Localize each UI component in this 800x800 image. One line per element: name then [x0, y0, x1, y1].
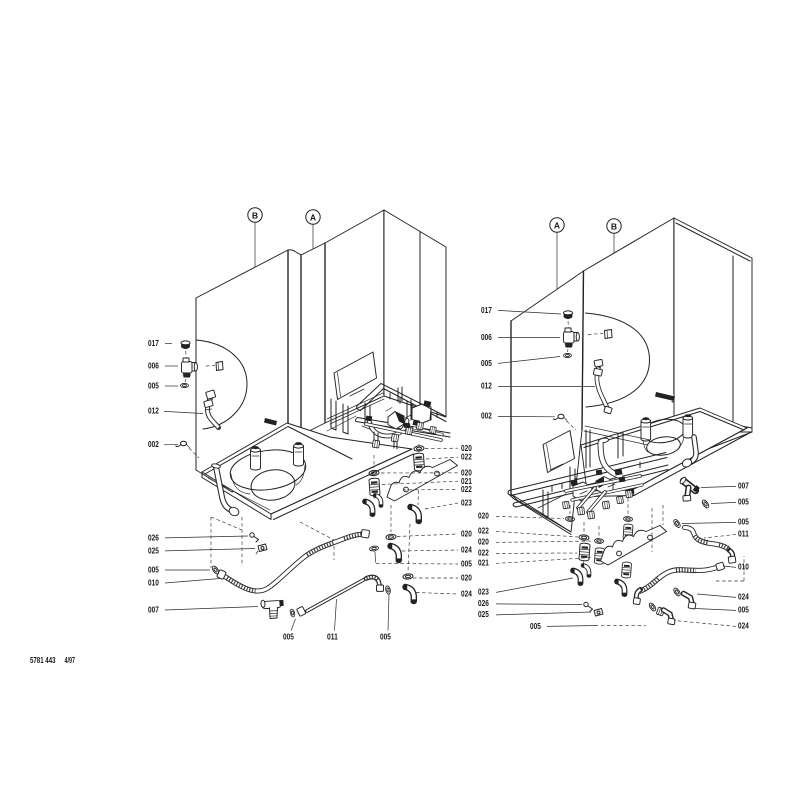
svg-text:006: 006: [148, 362, 159, 371]
svg-text:A: A: [310, 212, 316, 222]
svg-text:024: 024: [738, 622, 749, 631]
svg-text:005: 005: [148, 382, 159, 391]
svg-text:021: 021: [478, 559, 489, 568]
svg-text:4/97: 4/97: [65, 656, 76, 665]
svg-text:007: 007: [148, 606, 159, 615]
svg-text:024: 024: [461, 590, 472, 599]
svg-text:023: 023: [461, 499, 472, 508]
svg-text:010: 010: [738, 563, 749, 572]
svg-text:005: 005: [380, 633, 391, 642]
svg-text:011: 011: [327, 633, 338, 642]
svg-text:B: B: [252, 210, 258, 220]
svg-text:017: 017: [148, 339, 159, 348]
svg-text:024: 024: [738, 593, 749, 602]
svg-text:007: 007: [738, 482, 749, 491]
svg-text:011: 011: [738, 530, 749, 539]
svg-text:020: 020: [478, 512, 489, 521]
svg-text:005: 005: [148, 566, 159, 575]
svg-text:005: 005: [738, 498, 749, 507]
svg-text:A: A: [554, 220, 560, 230]
svg-text:025: 025: [478, 610, 489, 619]
svg-text:010: 010: [148, 579, 159, 588]
svg-text:020: 020: [461, 530, 472, 539]
svg-text:022: 022: [478, 549, 489, 558]
svg-text:026: 026: [478, 599, 489, 608]
svg-text:017: 017: [481, 306, 492, 315]
svg-text:020: 020: [461, 574, 472, 583]
svg-text:022: 022: [461, 485, 472, 494]
svg-text:006: 006: [481, 333, 492, 342]
svg-text:025: 025: [148, 547, 159, 556]
svg-text:005: 005: [461, 560, 472, 569]
svg-text:B: B: [611, 221, 617, 231]
svg-text:005: 005: [738, 606, 749, 615]
svg-text:005: 005: [530, 622, 541, 631]
svg-text:005: 005: [481, 359, 492, 368]
svg-text:005: 005: [283, 633, 294, 642]
svg-text:005: 005: [738, 518, 749, 527]
svg-text:023: 023: [478, 588, 489, 597]
svg-text:002: 002: [481, 412, 492, 421]
svg-text:012: 012: [481, 382, 492, 391]
svg-text:024: 024: [461, 546, 472, 555]
svg-text:022: 022: [461, 453, 472, 462]
svg-text:002: 002: [148, 440, 159, 449]
svg-text:012: 012: [148, 407, 159, 416]
svg-text:5781 443: 5781 443: [30, 656, 56, 665]
svg-text:026: 026: [148, 534, 159, 543]
svg-text:022: 022: [478, 527, 489, 536]
svg-text:020: 020: [478, 538, 489, 547]
